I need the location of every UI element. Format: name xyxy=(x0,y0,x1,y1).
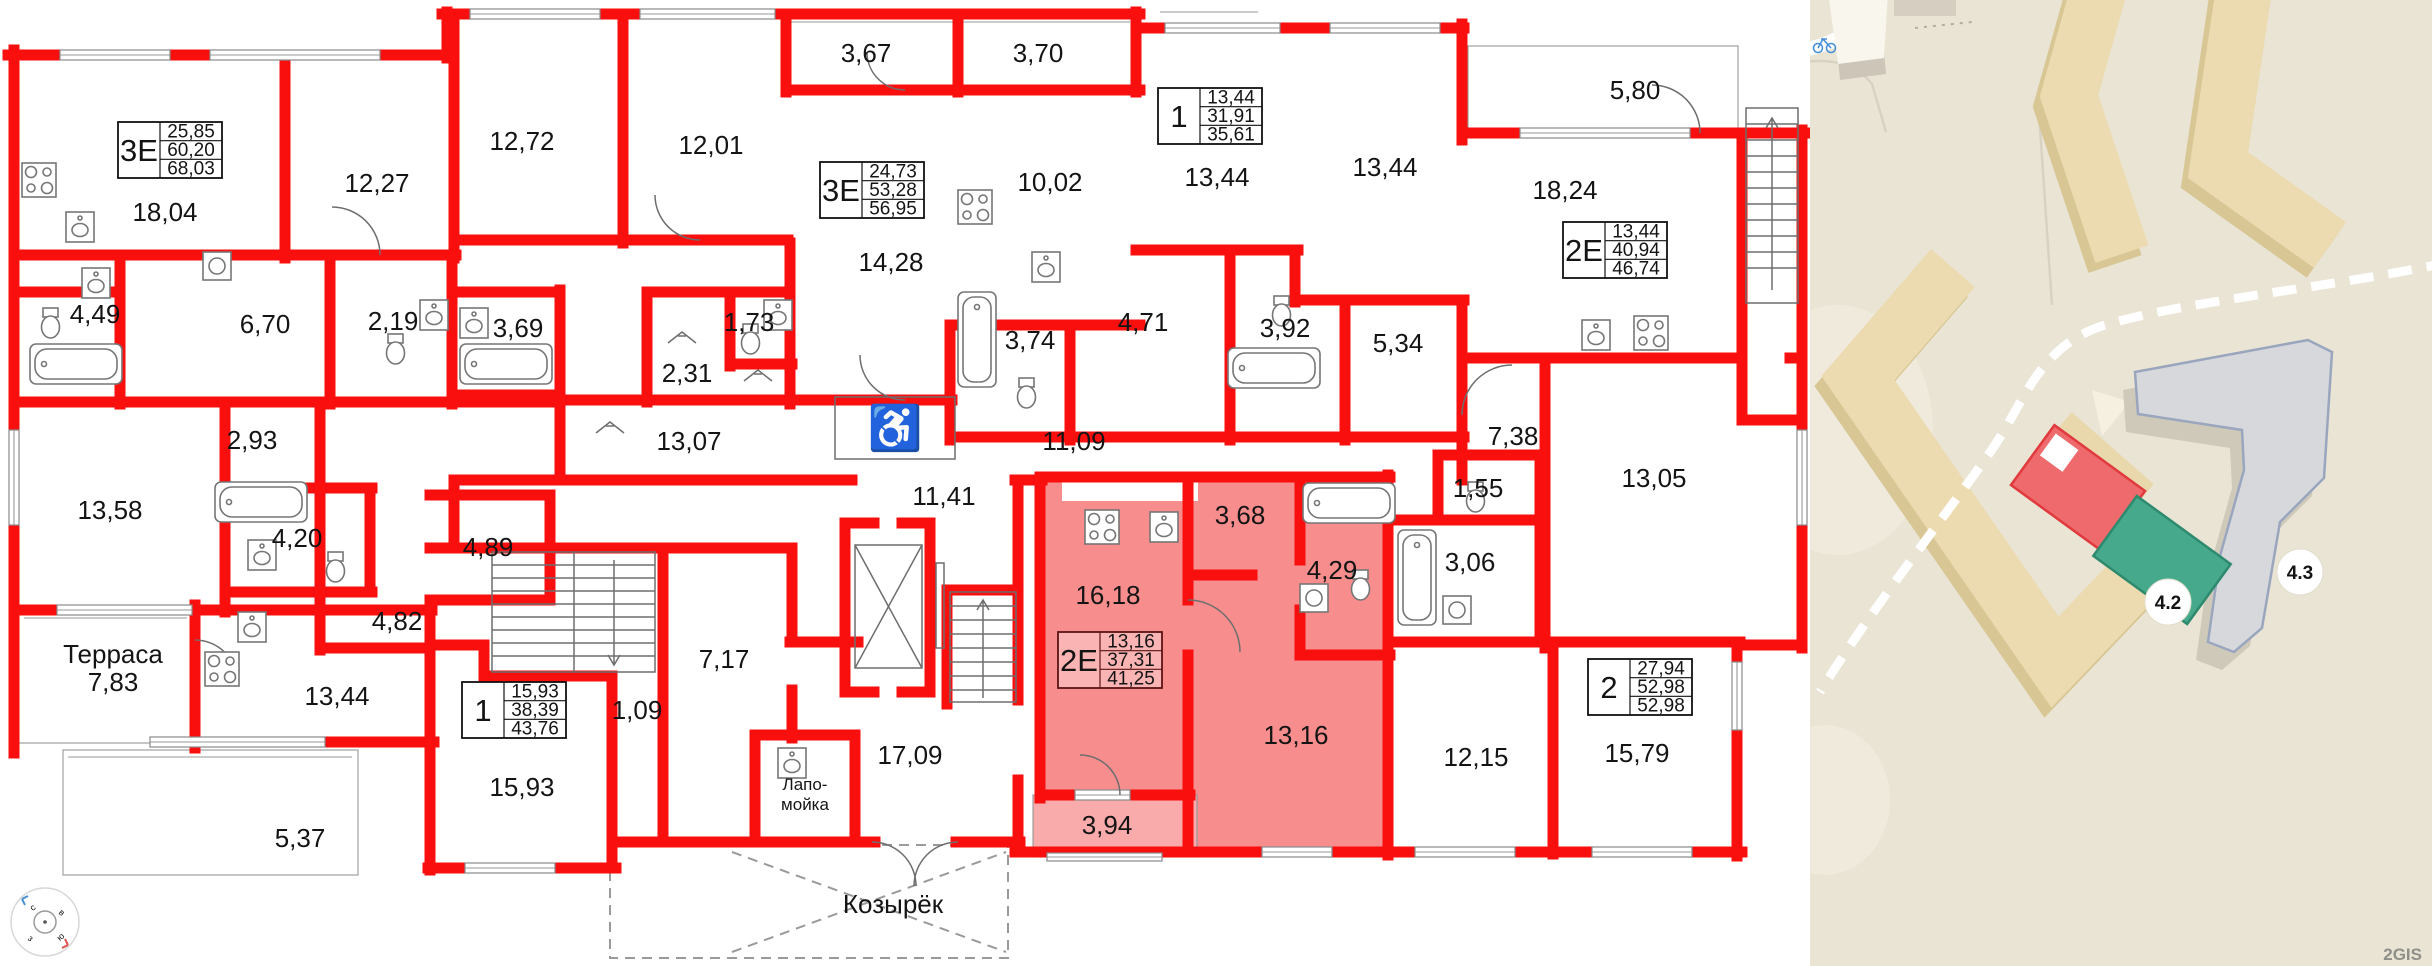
room-label: 12,15 xyxy=(1443,742,1508,772)
map-badge-4-3[interactable]: 4.3 xyxy=(2277,549,2323,595)
room-label: 3,94 xyxy=(1082,810,1133,840)
floorplan-viewer: ♿ 18,04 12,27 xyxy=(0,0,2432,966)
room-label: 4,49 xyxy=(70,299,121,329)
terrace-label: Терраса xyxy=(63,639,163,669)
svg-text:68,03: 68,03 xyxy=(167,159,215,180)
room-label: 3,67 xyxy=(841,38,892,68)
room-label: 3,70 xyxy=(1013,38,1064,68)
room-label: 3,92 xyxy=(1260,313,1311,343)
canopy-label: Козырёк xyxy=(843,889,944,919)
room-label: 3,74 xyxy=(1005,325,1056,355)
room-label: 13,44 xyxy=(304,681,369,711)
compass-icon: с в з ю xyxy=(11,888,79,956)
room-label: 5,34 xyxy=(1373,328,1424,358)
svg-text:2: 2 xyxy=(1600,670,1617,705)
svg-text:3Е: 3Е xyxy=(120,133,158,168)
room-label: 4,71 xyxy=(1118,307,1169,337)
2gis-watermark: 2GIS xyxy=(2383,945,2422,964)
room-label: 2,93 xyxy=(227,425,278,455)
room-label: 3,69 xyxy=(493,313,544,343)
room-label: 12,27 xyxy=(344,168,409,198)
map-badge-4-2[interactable]: 4.2 xyxy=(2145,579,2191,625)
svg-text:4.2: 4.2 xyxy=(2155,593,2181,614)
room-label: 13,44 xyxy=(1352,152,1417,182)
room-label: 13,44 xyxy=(1184,162,1249,192)
svg-text:56,95: 56,95 xyxy=(869,199,917,220)
svg-text:43,76: 43,76 xyxy=(511,719,559,740)
room-label: 13,58 xyxy=(77,495,142,525)
svg-text:2Е: 2Е xyxy=(1060,643,1098,678)
room-label: 13,05 xyxy=(1621,463,1686,493)
room-label: 12,01 xyxy=(678,130,743,160)
room-label: 4,20 xyxy=(272,523,323,553)
svg-text:52,98: 52,98 xyxy=(1637,696,1685,717)
room-label: 7,17 xyxy=(699,644,750,674)
room-label: 16,18 xyxy=(1075,580,1140,610)
room-label: 14,28 xyxy=(858,247,923,277)
svg-text:41,25: 41,25 xyxy=(1107,669,1155,690)
room-label: 3,68 xyxy=(1215,500,1266,530)
room-label: 2,31 xyxy=(662,358,713,388)
apartment-card-3e-top-mid[interactable]: 3Е 24,73 53,28 56,95 xyxy=(820,162,924,220)
svg-text:1: 1 xyxy=(1170,99,1187,134)
apartment-card-1-bottom[interactable]: 1 15,93 38,39 43,76 xyxy=(462,682,566,740)
paw-wash-label: Лапо- xyxy=(783,775,828,794)
room-label: 15,93 xyxy=(489,772,554,802)
svg-text:46,74: 46,74 xyxy=(1612,259,1660,280)
site-map[interactable]: 4.2 4.3 2GIS xyxy=(1810,0,2432,966)
room-label: 4,29 xyxy=(1307,555,1358,585)
room-label: 1,73 xyxy=(724,307,775,337)
room-label: 6,70 xyxy=(240,309,291,339)
room-label: 18,24 xyxy=(1532,175,1597,205)
room-label: 10,02 xyxy=(1017,167,1082,197)
room-label: 5,80 xyxy=(1610,75,1661,105)
room-label: 15,79 xyxy=(1604,738,1669,768)
room-label: 17,09 xyxy=(877,740,942,770)
apartment-card-1-top[interactable]: 1 13,44 31,91 35,61 xyxy=(1158,88,1262,146)
room-label: 4,89 xyxy=(463,532,514,562)
room-label: 11,09 xyxy=(1042,426,1105,456)
room-label: 2,19 xyxy=(368,306,419,336)
apartment-card-2e-selected[interactable]: 2Е 13,16 37,31 41,25 xyxy=(1058,632,1162,690)
room-label: 1,55 xyxy=(1453,473,1504,503)
room-label: 1,09 xyxy=(612,695,663,725)
wheelchair-icon: ♿ xyxy=(868,403,923,453)
room-label: 18,04 xyxy=(132,197,197,227)
room-label: 4,82 xyxy=(372,606,423,636)
svg-text:3Е: 3Е xyxy=(822,173,860,208)
room-label: 11,41 xyxy=(912,481,975,511)
room-label: 13,16 xyxy=(1263,720,1328,750)
svg-text:4.3: 4.3 xyxy=(2287,563,2313,584)
floor-plan: ♿ 18,04 12,27 xyxy=(0,0,1810,966)
selected-entry-niche xyxy=(1062,481,1198,501)
room-label: 7,38 xyxy=(1488,421,1539,451)
apartment-card-2e-right[interactable]: 2Е 13,44 40,94 46,74 xyxy=(1563,222,1667,280)
paw-wash-label: мойка xyxy=(781,795,829,814)
room-label: 3,06 xyxy=(1445,547,1496,577)
terrace-area-label: 7,83 xyxy=(88,667,139,697)
svg-text:1: 1 xyxy=(474,693,491,728)
room-label: 12,72 xyxy=(489,126,554,156)
apartment-card-2-bottom-right[interactable]: 2 27,94 52,98 52,98 xyxy=(1588,659,1692,717)
svg-text:2Е: 2Е xyxy=(1565,233,1603,268)
apartment-card-3e-top-left[interactable]: 3Е 25,85 60,20 68,03 xyxy=(118,122,222,180)
svg-text:35,61: 35,61 xyxy=(1207,125,1255,146)
room-label: 13,07 xyxy=(656,426,721,456)
room-label: 5,37 xyxy=(275,823,326,853)
